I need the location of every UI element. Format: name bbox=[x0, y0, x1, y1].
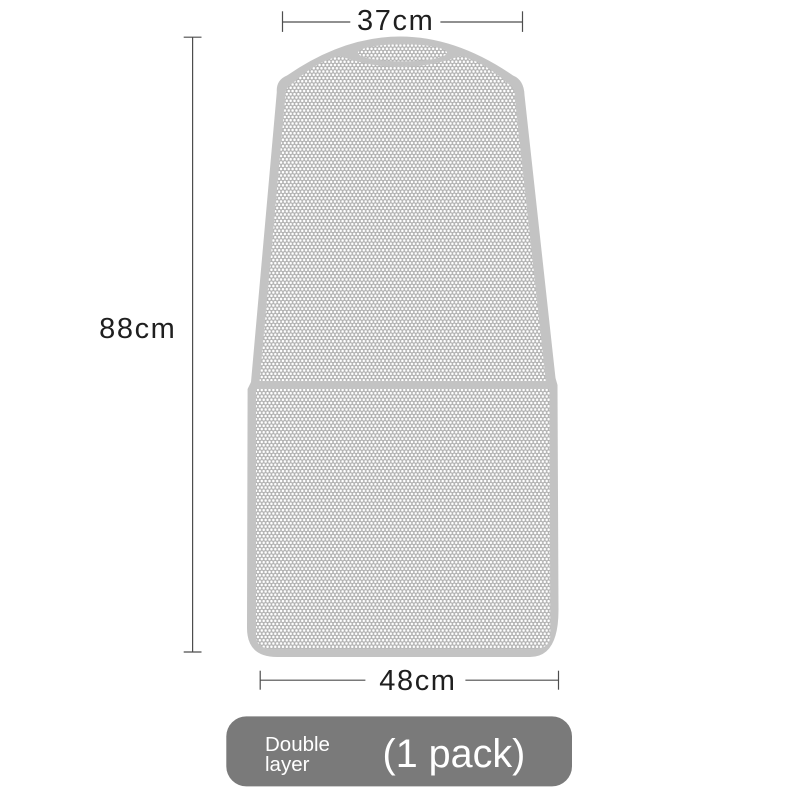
svg-text:(1 pack): (1 pack) bbox=[383, 732, 526, 776]
svg-text:48cm: 48cm bbox=[379, 665, 456, 697]
svg-text:37cm: 37cm bbox=[357, 5, 434, 37]
svg-text:88cm: 88cm bbox=[99, 313, 176, 345]
svg-text:layer: layer bbox=[265, 753, 310, 776]
